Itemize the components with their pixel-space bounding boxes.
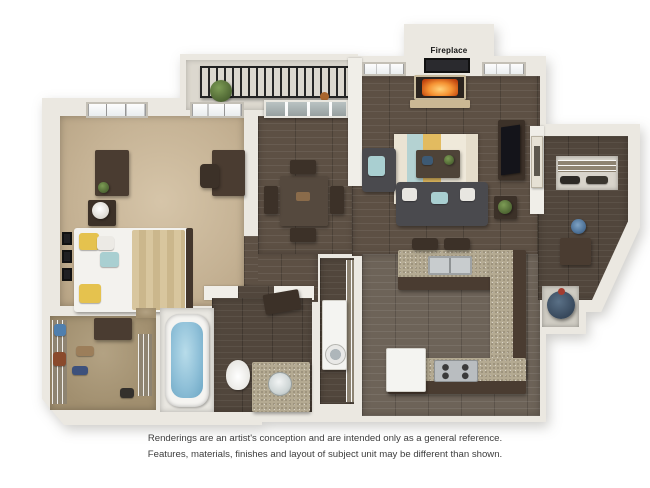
- fireplace-hearth: [410, 100, 470, 108]
- bathtub-water: [171, 322, 203, 398]
- balcony-sliding-door: [264, 100, 348, 118]
- bar-stool-2: [444, 238, 470, 250]
- bed-pillow-teal: [100, 252, 119, 267]
- dining-table: [280, 176, 328, 226]
- wall-dining-living: [348, 58, 362, 186]
- vanity-sink: [268, 372, 292, 396]
- dining-chair-bottom: [290, 228, 316, 242]
- entry-console: [560, 238, 591, 265]
- coffee-table-plant: [444, 155, 454, 165]
- fireplace-label: Fireplace: [404, 46, 494, 55]
- bedroom-wall-art-1: [62, 232, 72, 245]
- sofa-pillow-teal: [431, 192, 448, 204]
- dining-chair-top: [290, 160, 316, 174]
- floor-plan-rendering: Fireplace: [0, 0, 650, 488]
- coat-closet-shoes-1: [560, 176, 580, 184]
- dining-chair-left: [264, 186, 278, 214]
- closet-clothes-blue: [54, 324, 66, 336]
- bed-pillow-white: [97, 236, 114, 250]
- closet-top-shelf: [94, 318, 132, 340]
- dresser-plant: [98, 182, 109, 193]
- fireplace-fire: [422, 79, 458, 96]
- living-window-right: [482, 62, 526, 76]
- closet-clothes-maroon: [53, 352, 66, 366]
- kitchen-sink: [428, 256, 472, 275]
- bedroom-window-right: [190, 102, 244, 118]
- bedroom-wall-art-3: [62, 268, 72, 281]
- bedroom-door-threshold: [244, 236, 258, 284]
- balcony-plant: [210, 80, 232, 102]
- living-window-left: [362, 62, 406, 76]
- bedroom-wall-art-2: [62, 250, 72, 263]
- coat-closet-shoes-2: [586, 176, 608, 184]
- bed-pillow-yellow-1: [79, 233, 99, 250]
- bar-stool-1: [412, 238, 438, 250]
- water-heater: [547, 291, 575, 319]
- refrigerator: [386, 348, 426, 392]
- side-table-plant: [498, 200, 512, 214]
- coffee-table-tablet: [422, 156, 433, 165]
- toilet: [226, 360, 250, 390]
- closet-clothes-navy: [72, 366, 88, 375]
- bedroom-window-left: [86, 102, 148, 118]
- washer-door: [325, 344, 346, 365]
- entry-decor-blue-plate: [571, 219, 586, 234]
- laundry-shelving: [346, 260, 354, 402]
- fireplace-art: [424, 58, 470, 73]
- dining-chair-right: [330, 186, 344, 214]
- bedroom-lamp: [92, 202, 109, 219]
- desk-chair: [200, 164, 219, 188]
- disclaimer: Renderings are an artist's conception an…: [0, 431, 650, 463]
- sofa-pillow-white-2: [460, 188, 475, 201]
- closet-clothes-hanging: [76, 346, 94, 356]
- tv-screen: [501, 125, 520, 176]
- stove: [434, 360, 478, 382]
- closet-door-threshold: [136, 308, 156, 318]
- closet-shelf-right: [138, 334, 152, 396]
- bed-footboard: [186, 228, 193, 312]
- closet-clothes-dark: [120, 388, 134, 398]
- sofa-pillow-white-1: [402, 188, 417, 201]
- bed-blanket: [132, 230, 185, 310]
- water-heater-valve: [558, 288, 565, 295]
- disclaimer-line-1: Renderings are an artist's conception an…: [0, 431, 650, 447]
- entry-wall-art-image: [534, 146, 540, 176]
- dining-table-decor: [296, 192, 310, 201]
- disclaimer-line-2: Features, materials, finishes and layout…: [0, 447, 650, 463]
- armchair-pillow: [368, 156, 385, 176]
- bed-pillow-yellow-2: [79, 284, 101, 303]
- coat-closet-shelf: [558, 160, 616, 172]
